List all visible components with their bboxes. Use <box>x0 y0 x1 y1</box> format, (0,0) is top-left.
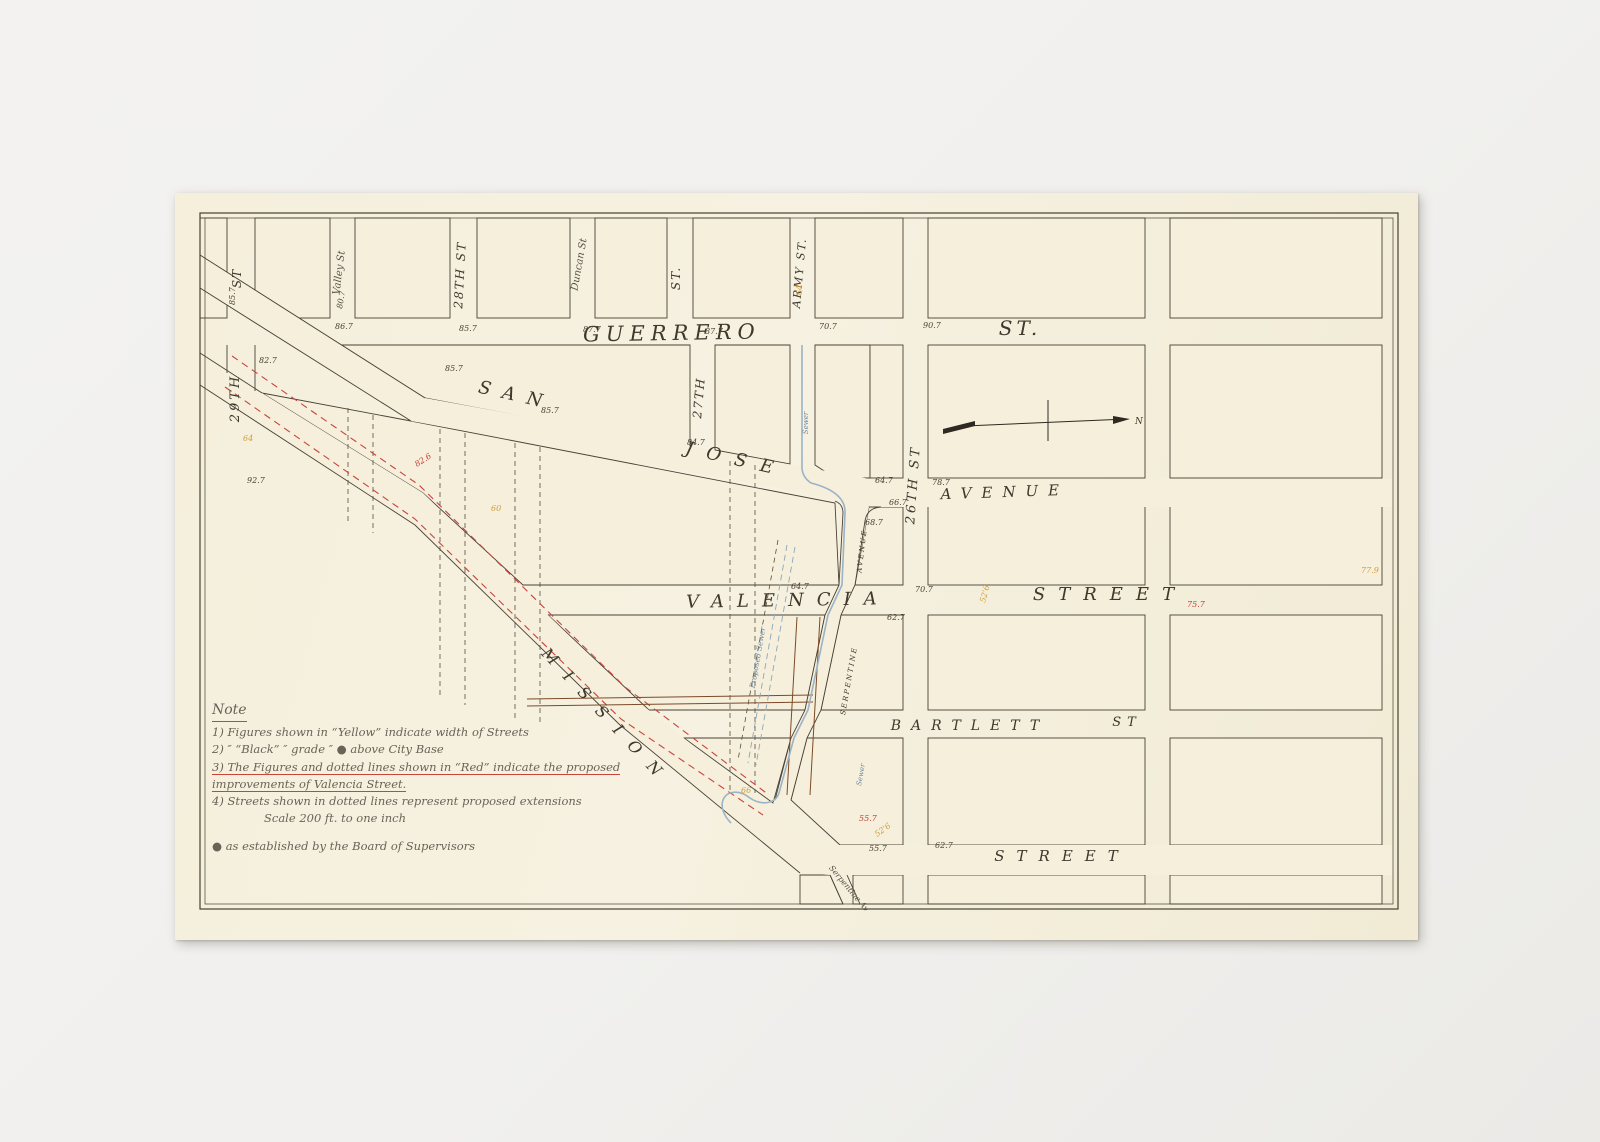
compass-north-label: N <box>1134 417 1144 427</box>
map-annotation: 84.7 <box>687 438 706 447</box>
map-annotation: 86.7 <box>335 322 354 331</box>
map-annotation: 60 <box>491 504 501 513</box>
street-label-duncan: Duncan St <box>569 237 589 293</box>
map-annotation: 85.7 <box>459 324 478 333</box>
street-label-guerrero: GUERRERO <box>583 319 761 346</box>
mat-board: N GUERRERO ST. SAN JOSE AVENUE VALENCIA … <box>0 0 1600 1142</box>
street-label-27th: 27TH <box>690 376 708 420</box>
street-label-26th: 26TH ST <box>903 445 924 526</box>
map-annotation: 77.9 <box>1361 566 1379 575</box>
street-label-valencia: VALENCIA <box>686 588 890 613</box>
map-annotation: 87.7 <box>583 325 602 334</box>
map-annotation: 62.7 <box>935 841 954 850</box>
street-label-valencia-street: STREET <box>1033 584 1187 605</box>
street-label-guerrero-st: ST. <box>999 316 1041 340</box>
map-annotation: 85.7 <box>228 286 237 305</box>
city-block <box>1170 738 1382 845</box>
map-note: Note 1) Figures shown in “Yellow” indica… <box>212 700 652 855</box>
map-annotation: 64 <box>795 285 804 295</box>
city-block <box>1170 875 1382 904</box>
city-block <box>595 218 667 318</box>
city-block <box>1170 218 1382 318</box>
map-annotation: 75.7 <box>1187 600 1206 609</box>
city-block <box>928 738 1145 845</box>
city-block <box>870 345 903 478</box>
street-label-bartlett: BARTLETT <box>890 718 1049 734</box>
street-label-29th-st: ST <box>230 268 244 288</box>
map-annotation: 87.7 <box>705 327 724 336</box>
note-text: 2) ″ “Black” ″ grade ″ ● above City Base <box>212 742 444 756</box>
map-annotation: 66 <box>741 786 751 795</box>
note-lines: 1) Figures shown in “Yellow” indicate wi… <box>212 724 652 855</box>
street-label-27th-st: ST. <box>669 266 683 290</box>
note-text: ● as established by the Board of Supervi… <box>212 839 475 853</box>
city-block <box>815 345 870 478</box>
note-text: Valencia Street. <box>314 777 407 792</box>
map-annotation: 92.7 <box>247 476 266 485</box>
city-block <box>477 218 570 318</box>
map-annotation: 70.7 <box>915 585 934 594</box>
map-annotation: 80.7 <box>335 289 347 309</box>
map-annotation: 78.7 <box>932 478 951 487</box>
map-annotation: 68.7 <box>865 518 884 527</box>
street-label-29th: 29TH <box>228 374 243 424</box>
street-label-28th: 28TH ST <box>451 241 469 310</box>
map-annotation: 85.7 <box>445 364 464 373</box>
map-annotation: 64.7 <box>791 582 810 591</box>
map-annotation: 55.7 <box>869 844 888 853</box>
map-annotation: 55.7 <box>859 814 878 823</box>
map-annotation: 62.7 <box>887 613 906 622</box>
map-annotation: 90.7 <box>923 321 942 330</box>
map-annotation: 82.7 <box>259 356 278 365</box>
city-block <box>1170 345 1382 478</box>
map-sheet: N GUERRERO ST. SAN JOSE AVENUE VALENCIA … <box>175 193 1418 940</box>
city-block <box>815 218 903 318</box>
street-label-valley: Valley St <box>331 249 347 295</box>
note-title: Note <box>212 700 247 722</box>
map-annotation: 66.7 <box>889 498 908 507</box>
note-text: improvements of <box>212 777 314 792</box>
city-block <box>1170 505 1382 585</box>
street-label-mission-street: STREET <box>994 847 1129 865</box>
street-label-army: ARMY ST. <box>790 237 809 310</box>
map-annotation: 85.7 <box>541 406 560 415</box>
city-block <box>928 345 1145 478</box>
sewer-label-upper: Sewer <box>802 411 810 434</box>
map-annotation: 70.7 <box>819 322 838 331</box>
note-text: 1) Figures shown in “Yellow” indicate wi… <box>212 725 529 739</box>
map-annotation: 64.7 <box>875 476 894 485</box>
city-block <box>355 218 450 318</box>
city-block <box>1170 615 1382 710</box>
city-block <box>928 875 1145 904</box>
city-block <box>928 218 1145 318</box>
map-annotation: 64 <box>243 434 253 443</box>
note-text: 3) The Figures and dotted lines shown in… <box>212 760 620 775</box>
street-label-bartlett-st: ST <box>1112 715 1142 730</box>
note-text: 4) Streets shown in dotted lines represe… <box>212 794 582 808</box>
city-block <box>928 615 1145 710</box>
note-text: Scale 200 ft. to one inch <box>264 811 406 825</box>
city-block <box>928 505 1145 585</box>
map-annotation: 52'6 <box>978 584 991 603</box>
city-block <box>693 218 790 318</box>
